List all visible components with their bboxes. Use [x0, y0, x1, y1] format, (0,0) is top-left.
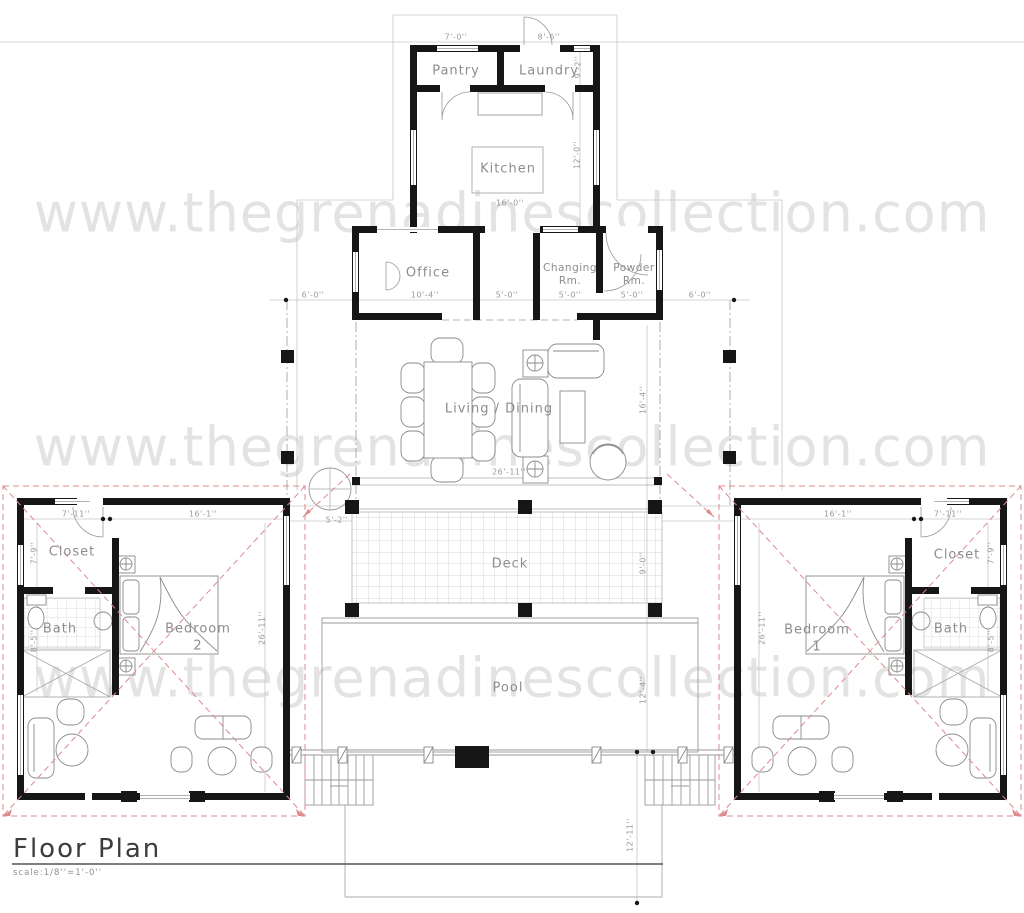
room-label-laundry: Laundry — [519, 64, 579, 79]
room-label-bedroom-left-2: 2 — [193, 639, 202, 654]
dim-left-bedroom-width: 16'-1'' — [189, 510, 217, 519]
dim-living-width: 26'-11'' — [492, 468, 526, 477]
room-label-closet-left: Closet — [49, 545, 96, 560]
floor-plan-drawing — [0, 0, 1024, 913]
page-title: Floor Plan — [13, 834, 161, 864]
dim-right-closet-width: 7'-11'' — [934, 510, 962, 519]
room-label-bedroom-right-1: Bedroom — [784, 623, 850, 638]
room-label-pantry: Pantry — [432, 64, 480, 79]
room-label-deck: Deck — [492, 557, 529, 572]
dim-hall-width: 5'-0'' — [496, 291, 519, 300]
dim-kitchen-height: 12'-0'' — [573, 141, 582, 169]
dim-laundry-height: 9'-2'' — [574, 56, 583, 79]
dim-deck-offset: 5'-2'' — [326, 516, 349, 525]
dim-left-closet-width: 7'-11'' — [62, 510, 90, 519]
dim-pool-height: 12'-4'' — [639, 676, 648, 704]
dim-right-closet-depth: 7'-9'' — [987, 542, 996, 565]
room-label-bath-right: Bath — [934, 622, 968, 637]
room-label-office: Office — [406, 266, 450, 281]
room-label-changing-2: Rm. — [559, 275, 581, 287]
outline-layer — [0, 15, 1024, 905]
dim-changing-width: 5'-0'' — [559, 291, 582, 300]
dim-kitchen-width: 16'-0'' — [496, 199, 524, 208]
dim-left-closet-depth: 7'-9'' — [30, 542, 39, 565]
scale-note: scale:1/8''=1'-0'' — [13, 868, 102, 878]
dim-left-wing-depth: 26'-11'' — [258, 611, 267, 645]
dim-powder-width: 5'-0'' — [621, 291, 644, 300]
dim-pool-lower: 12'-11'' — [626, 818, 635, 852]
dim-deck-height: 9'-0'' — [639, 552, 648, 575]
room-label-bath-left: Bath — [43, 622, 77, 637]
dim-left-bath-depth: 8'-5'' — [30, 630, 39, 653]
room-label-bedroom-right-2: 1 — [812, 640, 821, 655]
room-label-pool: Pool — [493, 681, 524, 696]
dim-left-porch: 6'-0'' — [302, 291, 325, 300]
pool-layer — [22, 618, 1002, 897]
dim-right-bath-depth: 8'-5'' — [987, 630, 996, 653]
dim-pantry-width: 7'-0'' — [445, 33, 468, 42]
dim-office-width: 10'-4'' — [411, 291, 439, 300]
floor-plan-page: www.thegrenadinescollection.com www.theg… — [0, 0, 1024, 913]
room-label-changing-1: Changing — [543, 262, 597, 274]
dim-right-porch: 6'-0'' — [689, 291, 712, 300]
dim-laundry-width: 8'-6'' — [538, 33, 561, 42]
furniture-layer — [27, 93, 997, 778]
dim-living-height: 16'-4'' — [639, 386, 648, 414]
room-label-powder-1: Powder — [613, 262, 654, 274]
room-label-powder-2: Rm. — [623, 275, 645, 287]
room-label-kitchen: Kitchen — [480, 162, 536, 177]
dim-right-bedroom-width: 16'-1'' — [824, 510, 852, 519]
room-label-bedroom-left-1: Bedroom — [165, 622, 231, 637]
room-label-closet-right: Closet — [934, 548, 981, 563]
room-label-living: Living / Dining — [445, 402, 553, 417]
dim-right-wing-depth: 26'-11'' — [758, 611, 767, 645]
